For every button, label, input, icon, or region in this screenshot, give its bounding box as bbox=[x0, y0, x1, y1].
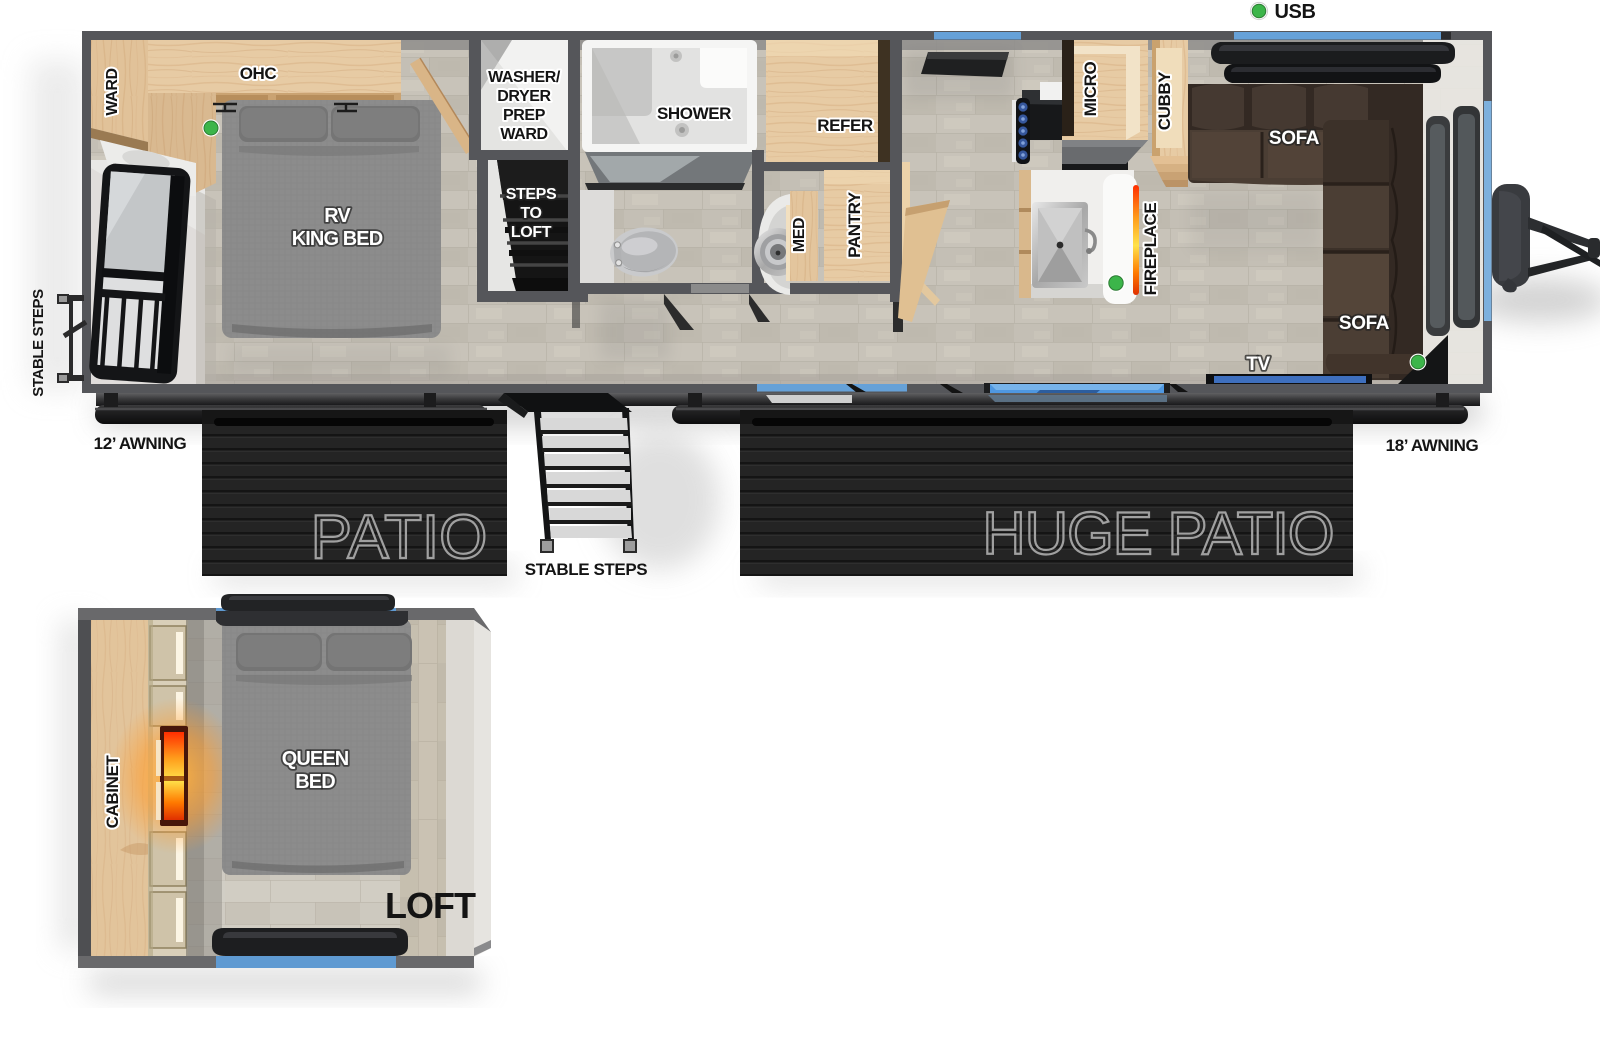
svg-text:WARD: WARD bbox=[500, 126, 547, 143]
svg-text:SOFA: SOFA bbox=[1269, 128, 1320, 149]
svg-text:PANTRY: PANTRY bbox=[845, 191, 864, 258]
svg-text:REFER: REFER bbox=[817, 116, 873, 135]
svg-text:STABLE STEPS: STABLE STEPS bbox=[30, 289, 47, 397]
svg-text:TO: TO bbox=[520, 205, 541, 222]
svg-text:MED: MED bbox=[791, 218, 808, 252]
svg-text:WARD: WARD bbox=[104, 68, 121, 115]
svg-text:LOFT: LOFT bbox=[385, 885, 476, 926]
svg-text:PATIO: PATIO bbox=[311, 503, 488, 572]
svg-text:DRYER: DRYER bbox=[497, 88, 551, 105]
svg-text:BED: BED bbox=[295, 771, 335, 793]
svg-text:OHC: OHC bbox=[240, 64, 277, 83]
svg-text:SOFA: SOFA bbox=[1339, 313, 1390, 334]
svg-text:USB: USB bbox=[1274, 1, 1315, 23]
svg-text:STEPS: STEPS bbox=[506, 186, 557, 203]
svg-text:KING BED: KING BED bbox=[292, 228, 383, 250]
svg-text:FIREPLACE: FIREPLACE bbox=[1141, 203, 1160, 296]
svg-text:18’ AWNING: 18’ AWNING bbox=[1386, 436, 1479, 455]
svg-text:12’ AWNING: 12’ AWNING bbox=[94, 434, 187, 453]
svg-text:SHOWER: SHOWER bbox=[657, 104, 731, 123]
svg-text:LOFT: LOFT bbox=[511, 224, 552, 241]
svg-text:QUEEN: QUEEN bbox=[282, 748, 349, 770]
svg-text:PREP: PREP bbox=[503, 107, 546, 124]
svg-text:CABINET: CABINET bbox=[103, 755, 122, 829]
svg-text:HUGE PATIO: HUGE PATIO bbox=[982, 500, 1333, 567]
svg-text:STABLE STEPS: STABLE STEPS bbox=[525, 560, 647, 579]
svg-text:CUBBY: CUBBY bbox=[1155, 71, 1174, 131]
svg-text:MICRO: MICRO bbox=[1081, 61, 1100, 116]
svg-text:RV: RV bbox=[324, 205, 351, 227]
svg-text:TV: TV bbox=[1246, 354, 1270, 375]
svg-text:WASHER/: WASHER/ bbox=[488, 69, 561, 86]
